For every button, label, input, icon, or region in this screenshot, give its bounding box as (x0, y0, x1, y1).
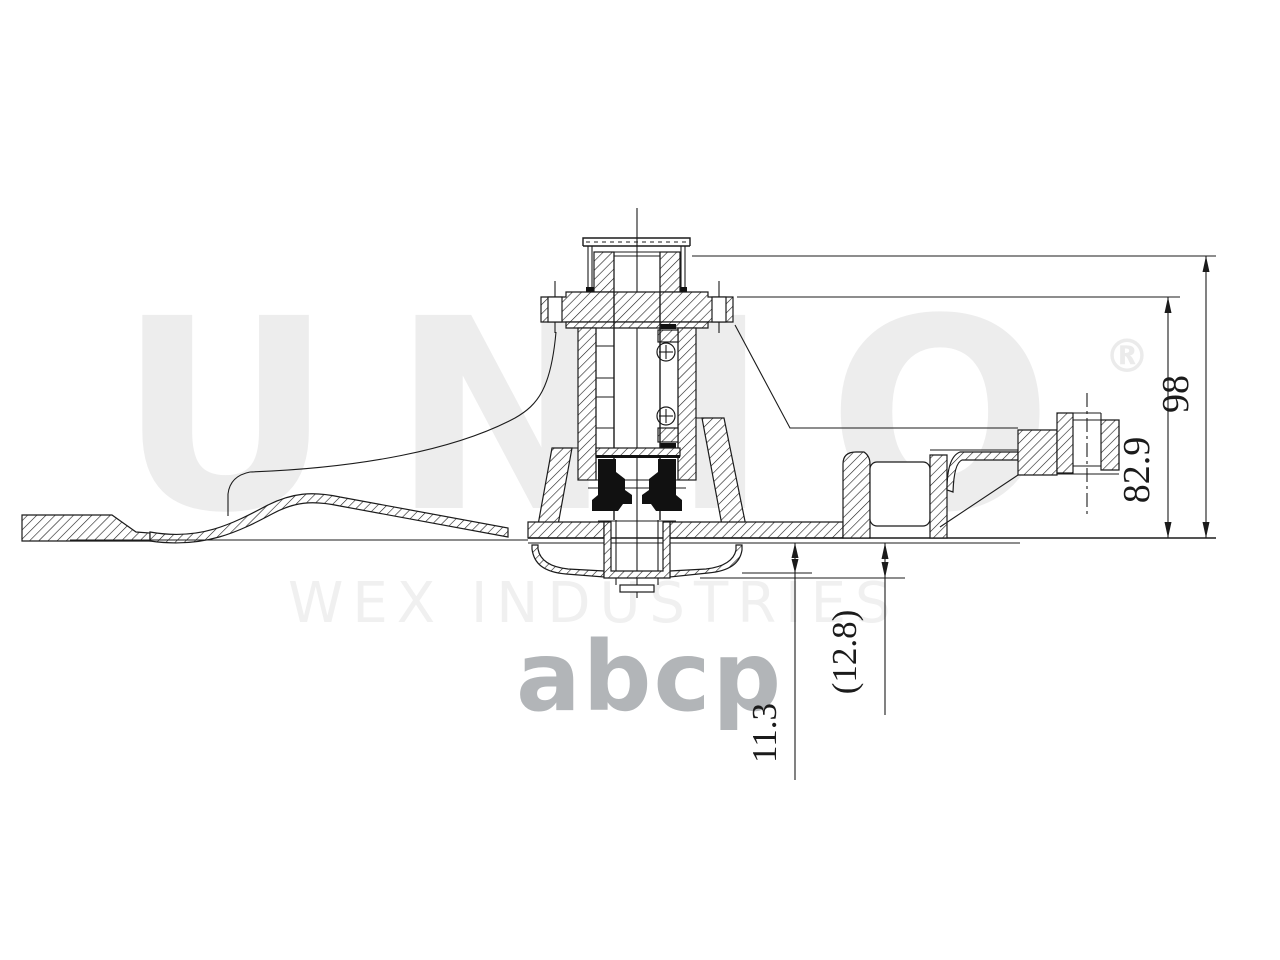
hub-section-left (594, 252, 614, 292)
channel-pocket (870, 462, 930, 526)
hub-section-right (660, 252, 680, 292)
outlet-arm (1018, 430, 1057, 475)
dimension-98-label: 98 (1155, 375, 1197, 413)
product-technical-drawing-image: UNIO ® WEX INDUSTRIES abcp (0, 0, 1280, 960)
bearing-race-bottom (658, 428, 678, 442)
dimension-11-3-label: 11.3 (745, 703, 784, 763)
bolt-hole-right (712, 297, 726, 322)
store-logo-watermark: abcp (516, 621, 783, 733)
water-pump-technical-drawing: UNIO ® WEX INDUSTRIES abcp (0, 0, 1280, 960)
dimension-12-8-label: (12.8) (825, 610, 864, 695)
bolt-hole-left (548, 297, 562, 322)
dimension-82-9-label: 82.9 (1116, 437, 1158, 504)
registered-trademark-watermark: ® (1104, 329, 1150, 383)
hub-mounting-flange (541, 292, 733, 328)
bearing-race-top (658, 330, 678, 342)
